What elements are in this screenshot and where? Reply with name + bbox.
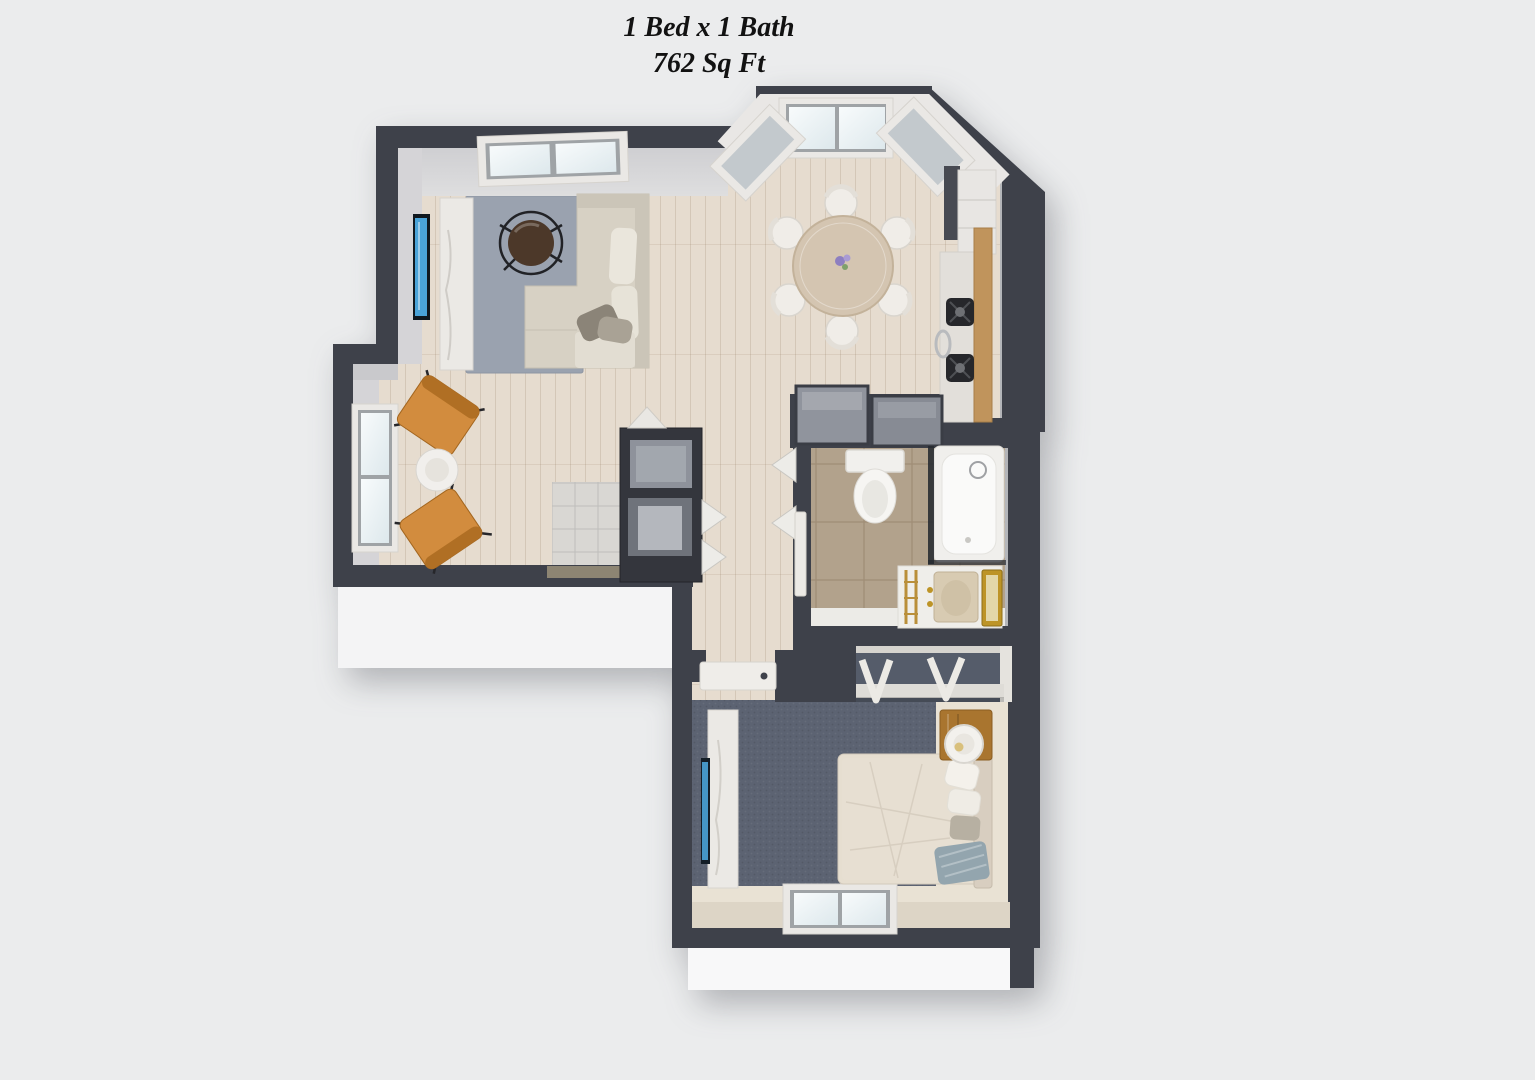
window-pane bbox=[555, 142, 616, 174]
wall-bedroom-pier bbox=[775, 650, 856, 702]
sofa-back-cushion bbox=[609, 227, 638, 284]
coffee-table bbox=[500, 212, 562, 274]
sofa-arm-right bbox=[635, 194, 649, 368]
table-top bbox=[508, 220, 554, 266]
faucet-handle bbox=[927, 601, 933, 607]
pillow bbox=[946, 788, 981, 816]
wall-bottom-right-extension bbox=[1010, 926, 1034, 988]
kitchen-counter bbox=[940, 252, 976, 422]
tv-console bbox=[440, 198, 473, 370]
stove-burner bbox=[946, 354, 974, 382]
nightstand bbox=[940, 710, 992, 763]
accent-pillow bbox=[949, 815, 981, 841]
bedroom-dresser bbox=[708, 710, 738, 888]
window-pane bbox=[794, 893, 838, 925]
bedroom-window bbox=[783, 884, 897, 934]
mirror-glass bbox=[986, 575, 998, 621]
bathtub-shower bbox=[928, 446, 1006, 565]
counter-wood-edge bbox=[974, 228, 992, 422]
window-pane bbox=[361, 479, 389, 543]
entry-closet-units bbox=[796, 386, 942, 446]
door-handle bbox=[761, 673, 768, 680]
dining-chair bbox=[826, 315, 858, 347]
knit-throw bbox=[934, 841, 991, 886]
sofa-arm-top bbox=[577, 194, 649, 208]
wall-right-lower bbox=[1008, 430, 1040, 948]
window-pane bbox=[842, 893, 886, 925]
bedroom-tv-screen bbox=[702, 762, 708, 860]
sink-basin bbox=[941, 580, 971, 616]
exterior-apron-left bbox=[338, 584, 690, 668]
window-pane bbox=[839, 107, 885, 149]
vanity bbox=[898, 566, 1002, 628]
closet-back bbox=[856, 646, 1004, 653]
leaf bbox=[842, 264, 848, 270]
toilet-seat bbox=[862, 480, 888, 518]
floor-plan bbox=[0, 0, 1535, 1080]
faucet-handle bbox=[927, 587, 933, 593]
nook-window bbox=[352, 404, 398, 552]
window-pane bbox=[361, 413, 389, 475]
stove-burner bbox=[946, 298, 974, 326]
shower-glass-panel bbox=[928, 446, 934, 564]
tv-screen bbox=[415, 218, 427, 316]
living-room-skylight-window bbox=[477, 131, 629, 186]
shower-glass-edge bbox=[928, 560, 1006, 565]
bed bbox=[838, 750, 992, 888]
wall-hall-left bbox=[672, 565, 692, 948]
tub-drain bbox=[965, 537, 971, 543]
bathroom-door bbox=[795, 512, 806, 596]
cabinet-glass bbox=[636, 446, 686, 482]
flower bbox=[844, 255, 851, 262]
apartment-unit bbox=[333, 86, 1045, 990]
closet-unit-top bbox=[802, 392, 862, 410]
lamp-bulb bbox=[955, 743, 964, 752]
wall-left-upper bbox=[376, 126, 398, 366]
dining-chair bbox=[825, 187, 857, 219]
cabinet-box bbox=[638, 506, 682, 550]
wallface-entry bbox=[547, 566, 623, 578]
window-pane bbox=[489, 144, 550, 176]
side-table-inner bbox=[425, 458, 449, 482]
wall-left-lower bbox=[333, 344, 353, 587]
side-table bbox=[416, 449, 458, 491]
entry-tile-grid bbox=[552, 482, 620, 568]
exterior-apron-bottom bbox=[688, 946, 1010, 990]
burner-center bbox=[955, 307, 965, 317]
burner-center bbox=[955, 363, 965, 373]
wallface-step bbox=[353, 364, 398, 380]
kitchen bbox=[936, 166, 996, 422]
closet-unit-top bbox=[878, 402, 936, 418]
